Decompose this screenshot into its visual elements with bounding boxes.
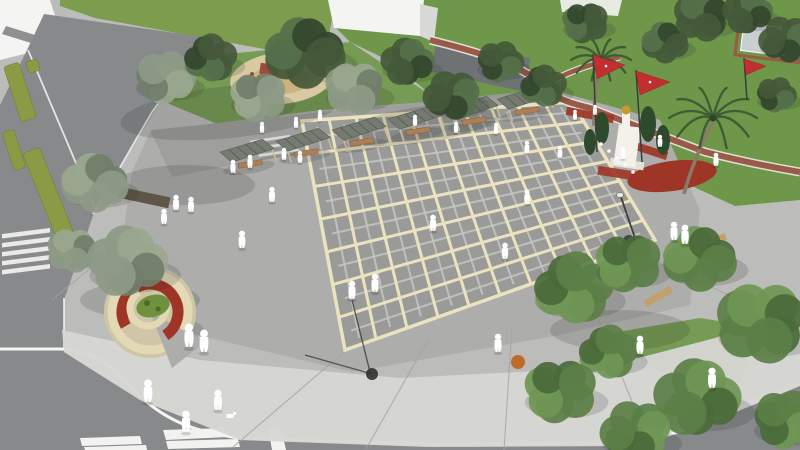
tree-lobe	[532, 362, 564, 394]
figure-shadow	[181, 432, 191, 436]
figure-shadow	[213, 410, 223, 414]
figure-shadow	[268, 202, 275, 205]
lamp-head	[617, 193, 624, 198]
figure-shadow	[143, 402, 154, 406]
tree-lobe	[757, 393, 791, 427]
figure-head	[708, 368, 715, 375]
figure-shadow	[317, 121, 322, 123]
figure-shadow	[160, 224, 167, 227]
figure-head	[269, 187, 274, 192]
dog-head	[233, 412, 236, 415]
figure-shadow	[199, 352, 210, 356]
figure-head	[144, 380, 152, 388]
figure-head	[495, 334, 501, 340]
figure-head	[200, 330, 208, 338]
tree-lobe	[559, 364, 596, 401]
figure-head	[494, 123, 498, 127]
figure-head	[682, 225, 689, 232]
figure-head	[231, 160, 236, 165]
figure-head	[714, 153, 719, 158]
tree-lobe	[627, 238, 661, 272]
figure-head	[239, 231, 245, 237]
figure-head	[298, 151, 302, 155]
figure-head	[637, 336, 643, 342]
figure-head	[372, 274, 378, 280]
tree-lobe	[387, 58, 414, 85]
figure-head	[294, 117, 298, 121]
golden-bust	[622, 106, 631, 115]
tree-lobe	[700, 387, 737, 424]
figure-head	[430, 215, 436, 221]
orange-flower-cluster	[511, 355, 525, 369]
figure-shadow	[707, 388, 717, 392]
plaza-render-canvas	[0, 0, 800, 450]
cypress	[640, 106, 656, 142]
figure-head	[260, 122, 264, 126]
figure-shadow	[429, 231, 437, 234]
tree-lobe	[165, 70, 193, 98]
tree-lobe	[665, 34, 689, 58]
flag-crescent	[649, 81, 652, 84]
tree-lobe	[584, 5, 608, 29]
tree-lobe	[758, 28, 785, 55]
figure-head	[502, 243, 508, 249]
figure-head	[413, 115, 417, 119]
figure-head	[573, 110, 577, 114]
figure-shadow	[453, 133, 458, 135]
figure-shadow	[183, 347, 194, 351]
figure-shadow	[670, 240, 679, 243]
planter-shrub	[144, 300, 150, 306]
figure-shadow	[494, 352, 503, 355]
tree-lobe	[257, 75, 286, 104]
planter-shrub	[156, 307, 161, 312]
tree-lobe	[603, 237, 632, 266]
figure-shadow	[187, 212, 194, 215]
figure-shadow	[636, 354, 645, 357]
figure-shadow	[557, 158, 563, 160]
tree-lobe	[746, 317, 792, 363]
figure-head	[185, 324, 193, 332]
bollard	[599, 142, 603, 146]
figure-shadow	[593, 115, 598, 117]
figure-head	[593, 105, 597, 109]
figure-shadow	[281, 160, 287, 162]
tree-lobe	[345, 85, 375, 115]
figure-head	[658, 135, 662, 139]
tree-lobe	[500, 56, 522, 78]
lamp-head-top	[366, 368, 378, 380]
figure-head	[525, 141, 529, 145]
tree-lobe	[776, 90, 795, 109]
figure-head	[349, 281, 355, 287]
tree-lobe	[567, 4, 587, 24]
figure-head	[188, 197, 193, 202]
figure-shadow	[297, 163, 303, 165]
figure-head	[173, 195, 178, 200]
figure-shadow	[247, 168, 253, 170]
tree-lobe	[556, 251, 596, 291]
figure-head	[318, 110, 322, 114]
figure-head	[248, 155, 253, 160]
figure-head	[558, 146, 562, 150]
figure-shadow	[501, 259, 509, 262]
tree	[717, 284, 800, 363]
palm-crown-center	[710, 115, 717, 122]
figure-shadow	[371, 292, 380, 295]
bollard	[631, 170, 635, 174]
figure-shadow	[293, 128, 298, 130]
tree-lobe	[600, 415, 635, 450]
render-image	[0, 0, 800, 450]
tree-lobe	[95, 256, 135, 296]
figure-head	[671, 222, 677, 228]
figure-shadow	[259, 133, 264, 135]
tree-lobe	[138, 54, 168, 84]
tree-lobe	[63, 247, 88, 272]
bollard	[623, 163, 627, 167]
figure-shadow	[230, 173, 236, 175]
tree-lobe	[533, 65, 557, 89]
figure-shadow	[493, 134, 498, 136]
figure-shadow	[657, 147, 663, 149]
figure-shadow	[713, 166, 719, 168]
figure-head	[182, 411, 190, 419]
tree-lobe	[130, 253, 165, 288]
dog-body	[226, 414, 234, 418]
tree-lobe	[479, 43, 503, 67]
tree-lobe	[236, 75, 260, 99]
figure-shadow	[524, 204, 531, 207]
figure-shadow	[238, 248, 246, 251]
tree-lobe	[693, 13, 722, 42]
figure-head	[524, 190, 529, 195]
tree-lobe	[728, 8, 753, 33]
figure-shadow	[524, 153, 530, 155]
tree-lobe	[198, 33, 225, 60]
figure-shadow	[620, 159, 626, 161]
figure-head	[454, 122, 458, 126]
flag-crescent	[605, 65, 608, 68]
figure-head	[282, 148, 286, 152]
bollard	[615, 156, 619, 160]
tree-lobe	[700, 245, 737, 282]
figure-head	[214, 390, 221, 397]
tree-lobe	[595, 324, 625, 354]
tree-lobe	[423, 83, 452, 112]
figure-shadow	[680, 244, 689, 247]
tree-lobe	[758, 79, 778, 99]
figure-shadow	[172, 210, 179, 213]
figure-head	[621, 147, 625, 151]
figure-shadow	[412, 126, 417, 128]
figure-shadow	[348, 299, 357, 302]
figure-shadow	[573, 120, 578, 122]
bollard	[607, 149, 611, 153]
figure-head	[161, 209, 166, 214]
cypress	[584, 129, 596, 155]
tree-lobe	[95, 170, 129, 204]
bust-pedestal	[622, 113, 630, 127]
